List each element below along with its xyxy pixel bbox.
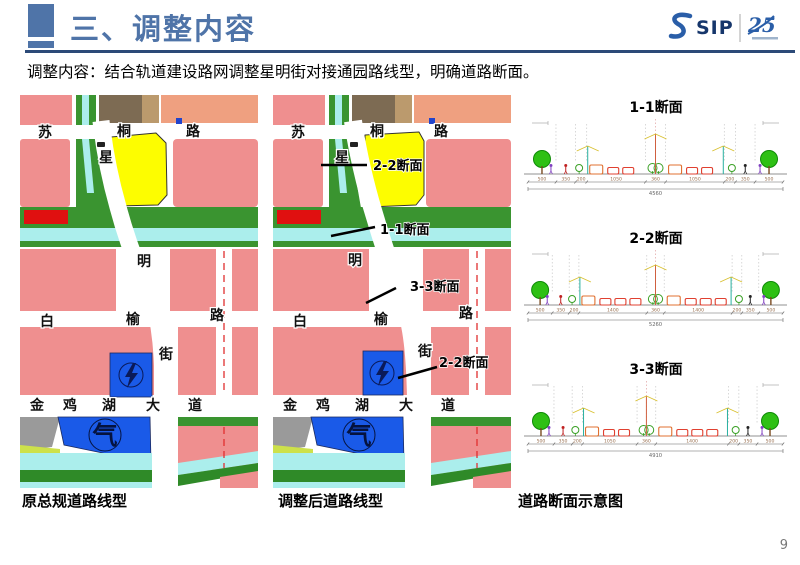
sip-logo: SIP 25	[656, 6, 788, 48]
sip-swoosh-icon	[671, 15, 690, 37]
adjusted-plan-map-svg: 苏 桐 路 星 明 白 榆 路 街 金 鸡 湖 大 道 气 2-2断面 1-1断…	[272, 95, 512, 488]
gas-label: 气	[345, 421, 371, 450]
road-label: 星	[99, 150, 113, 166]
road-label: 湖	[355, 398, 369, 414]
adjustment-description: 调整内容：结合轨道建设路网调整星明街对接通园路线型，明确道路断面。	[27, 60, 777, 82]
road-label: 桐	[117, 123, 131, 140]
dimension-value: 350	[746, 308, 755, 314]
left-map-caption: 原总规道路线型	[22, 490, 127, 511]
dimension-value: 500	[538, 177, 547, 183]
road-label: 苏	[38, 124, 52, 141]
road-label: 鸡	[62, 397, 77, 414]
road-label: 道	[441, 397, 455, 414]
dimension-value: 500	[537, 439, 546, 445]
road-label: 星	[335, 150, 349, 166]
road-label: 大	[146, 397, 160, 414]
road-label: 桐	[370, 123, 384, 140]
dimension-value: 1050	[689, 177, 701, 183]
section-annotation: 2-2断面	[439, 355, 489, 371]
dimension-value: 500	[765, 177, 774, 183]
middle-map-caption: 调整后道路线型	[278, 490, 383, 511]
road-label: 金	[29, 397, 45, 414]
section-drawing-host: 500350200105036010502003505004560	[516, 114, 796, 214]
dimension-value: 1400	[607, 308, 619, 314]
section-annotation: 1-1断面	[380, 222, 430, 238]
title-decoration-bar	[28, 41, 54, 48]
road-label: 路	[186, 123, 201, 140]
section-annotation: 2-2断面	[373, 158, 423, 174]
dimension-total: 5260	[649, 322, 662, 328]
road-label: 路	[434, 123, 449, 140]
section-3-3: 3-3断面 500350200105036014002003505004910	[516, 359, 796, 476]
dimension-value: 350	[744, 439, 753, 445]
road-label: 街	[417, 343, 432, 360]
road-label: 道	[188, 397, 202, 414]
dimension-value: 500	[766, 308, 775, 314]
dimension-value: 1050	[610, 177, 622, 183]
title-decoration-square	[28, 4, 54, 37]
dimension-value: 200	[573, 439, 582, 445]
road-label: 路	[210, 307, 225, 324]
right-panel-caption: 道路断面示意图	[518, 490, 623, 511]
road-label: 明	[348, 253, 362, 269]
logo-sip-text: SIP	[696, 17, 734, 39]
section-title: 1-1断面	[516, 97, 796, 114]
dimension-value: 200	[733, 308, 742, 314]
transit-stop-icon	[97, 142, 105, 147]
dimension-value: 350	[561, 177, 570, 183]
cross-section-drawing: 500350200140036014002003505005260	[516, 245, 795, 345]
dimension-value: 200	[729, 439, 738, 445]
dimension-value: 1050	[604, 439, 616, 445]
cross-sections-panel: 1-1断面 500350200105036010502003505004560 …	[516, 97, 796, 490]
section-title: 2-2断面	[516, 228, 796, 245]
gas-label: 气	[91, 421, 117, 450]
road-label: 路	[459, 305, 474, 322]
dimension-total: 4560	[649, 191, 662, 197]
road-label: 白	[40, 313, 54, 330]
dimension-value: 360	[642, 439, 651, 445]
dimension-value: 1400	[686, 439, 698, 445]
road-label: 苏	[291, 124, 305, 141]
dimension-value: 360	[651, 177, 660, 183]
page-title: 三、调整内容	[70, 6, 256, 48]
dimension-value: 500	[766, 439, 775, 445]
red-parcel	[277, 210, 321, 224]
section-drawing-host: 500350200140036014002003505005260	[516, 245, 796, 345]
road-label: 榆	[126, 311, 141, 328]
original-plan-map-svg: 苏 桐 路 星 明 白 榆 路 街 金 鸡 湖 大 道 气	[20, 95, 258, 488]
canal-band	[20, 228, 258, 241]
station-marker-icon	[176, 118, 182, 124]
adjusted-plan-map: 苏 桐 路 星 明 白 榆 路 街 金 鸡 湖 大 道 气 2-2断面 1-1断…	[272, 95, 512, 488]
dimension-value: 350	[559, 439, 568, 445]
section-1-1: 1-1断面 500350200105036010502003505004560	[516, 97, 796, 214]
transit-stop-icon	[350, 142, 358, 147]
dimension-value: 360	[651, 308, 660, 314]
page-number: 9	[780, 538, 788, 553]
dimension-value: 200	[570, 308, 579, 314]
section-annotation: 3-3断面	[410, 279, 460, 295]
road-label: 榆	[374, 311, 389, 328]
dimension-value: 200	[725, 177, 734, 183]
dimension-value: 350	[556, 308, 565, 314]
dimension-value: 1400	[692, 308, 704, 314]
original-plan-map: 苏 桐 路 星 明 白 榆 路 街 金 鸡 湖 大 道 气	[20, 95, 258, 488]
section-drawing-host: 500350200105036014002003505004910	[516, 376, 796, 476]
section-2-2: 2-2断面 500350200140036014002003505005260	[516, 228, 796, 345]
cross-section-drawing: 500350200105036010502003505004560	[516, 114, 795, 214]
road-label: 街	[158, 346, 173, 363]
road-label: 白	[293, 313, 307, 330]
dimension-value: 350	[741, 177, 750, 183]
header-divider	[25, 50, 795, 53]
dimension-value: 200	[577, 177, 586, 183]
road-label: 金	[282, 397, 298, 414]
road-label: 明	[137, 254, 151, 270]
dimension-value: 500	[536, 308, 545, 314]
road-label: 湖	[102, 398, 116, 414]
slide: 三、调整内容 SIP 25 调整内容：结合轨道建设路网调整星明街对接通园路线型，…	[0, 0, 800, 565]
red-parcel	[24, 210, 68, 224]
cross-section-drawing: 500350200105036014002003505004910	[516, 376, 795, 476]
dimension-total: 4910	[649, 453, 662, 459]
logo-tagline-bar	[752, 37, 778, 40]
section-title: 3-3断面	[516, 359, 796, 376]
road-label: 鸡	[315, 397, 330, 414]
road-label: 大	[399, 397, 413, 414]
